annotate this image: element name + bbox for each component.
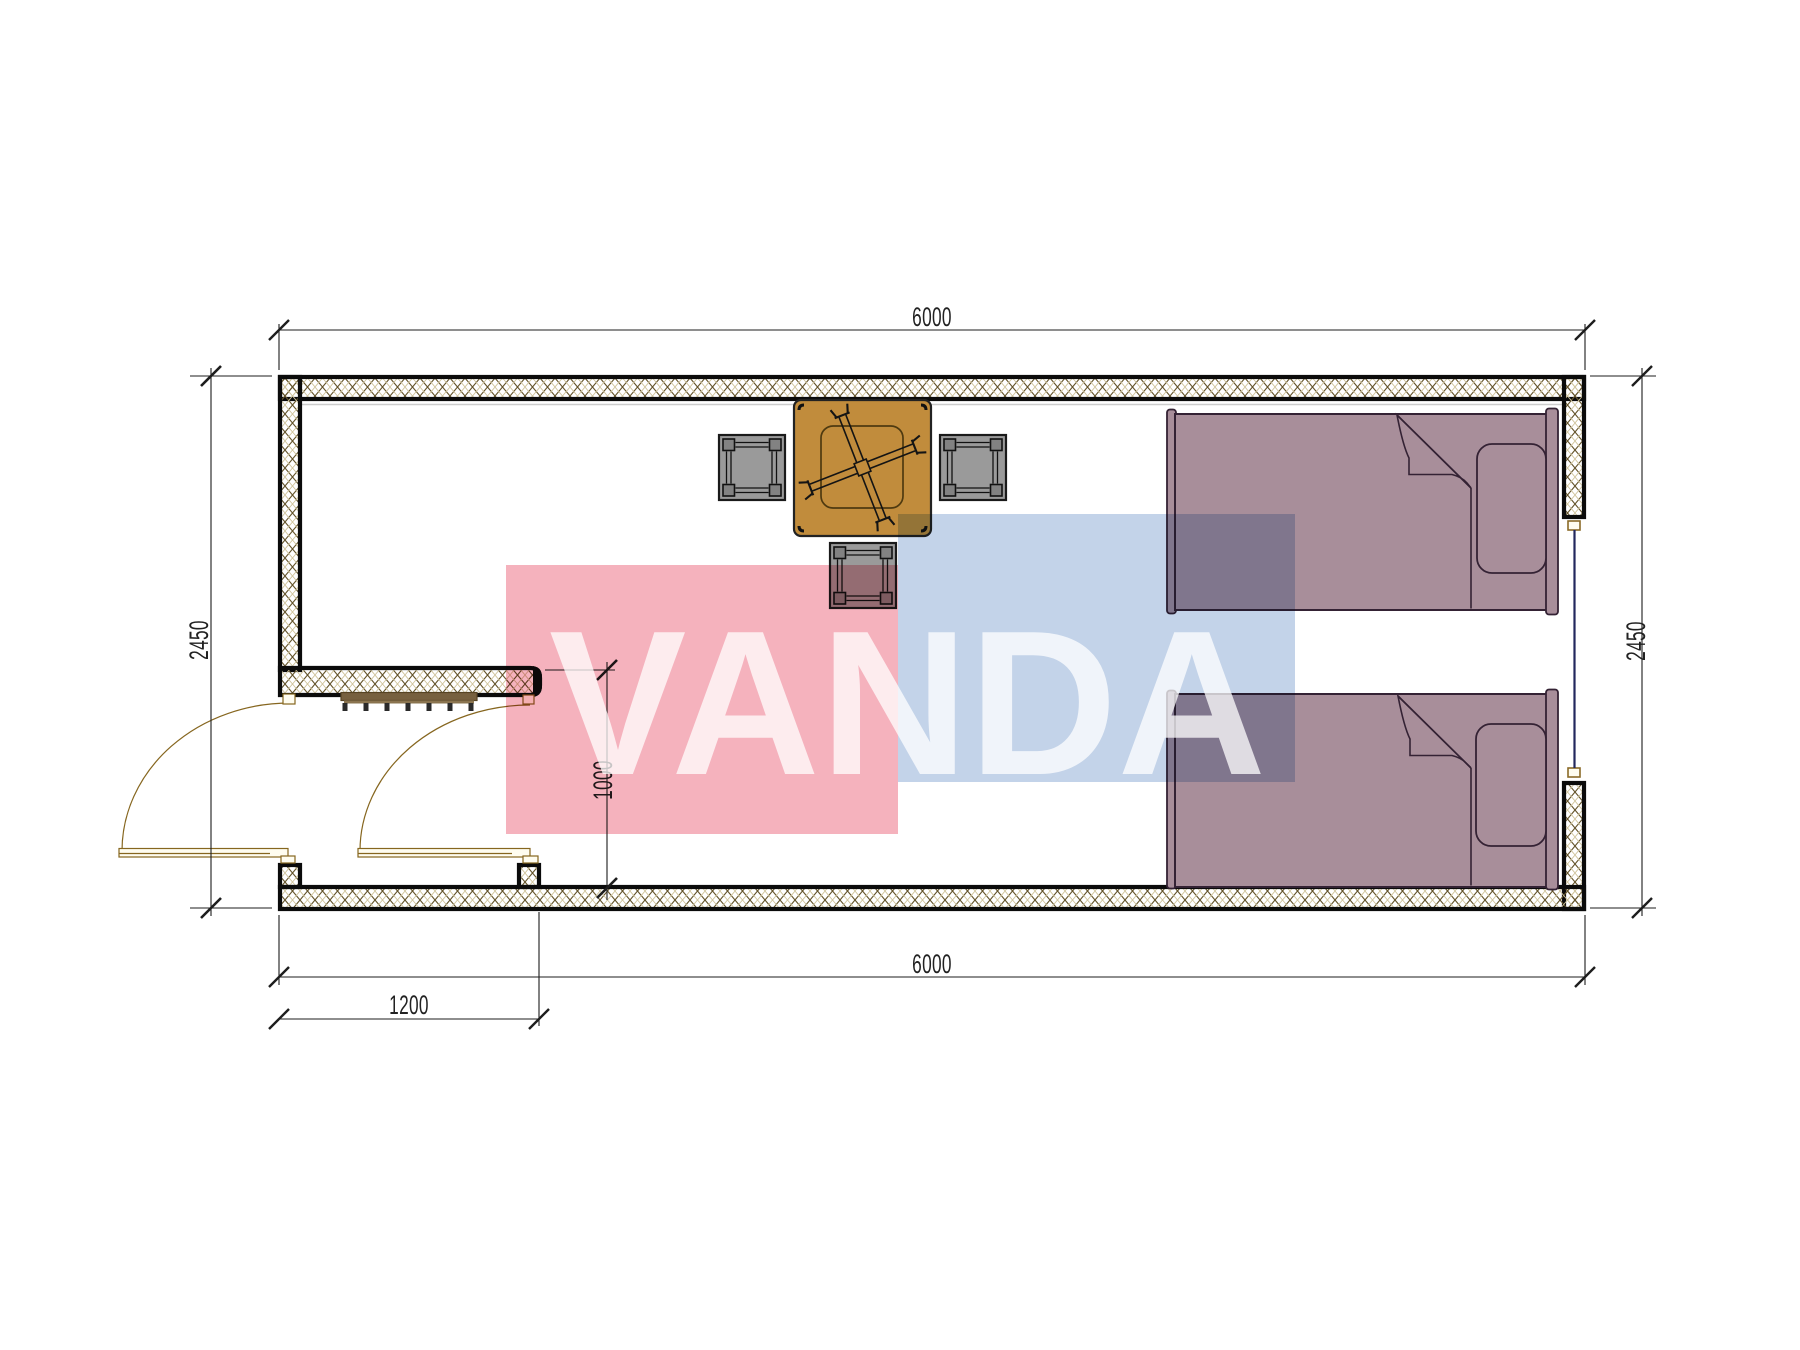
svg-text:2450: 2450 [183,620,214,660]
svg-text:1200: 1200 [389,989,429,1020]
svg-text:VANDA: VANDA [549,588,1266,818]
svg-text:6000: 6000 [912,301,952,332]
svg-text:6000: 6000 [912,948,952,979]
svg-text:2450: 2450 [1620,621,1651,661]
